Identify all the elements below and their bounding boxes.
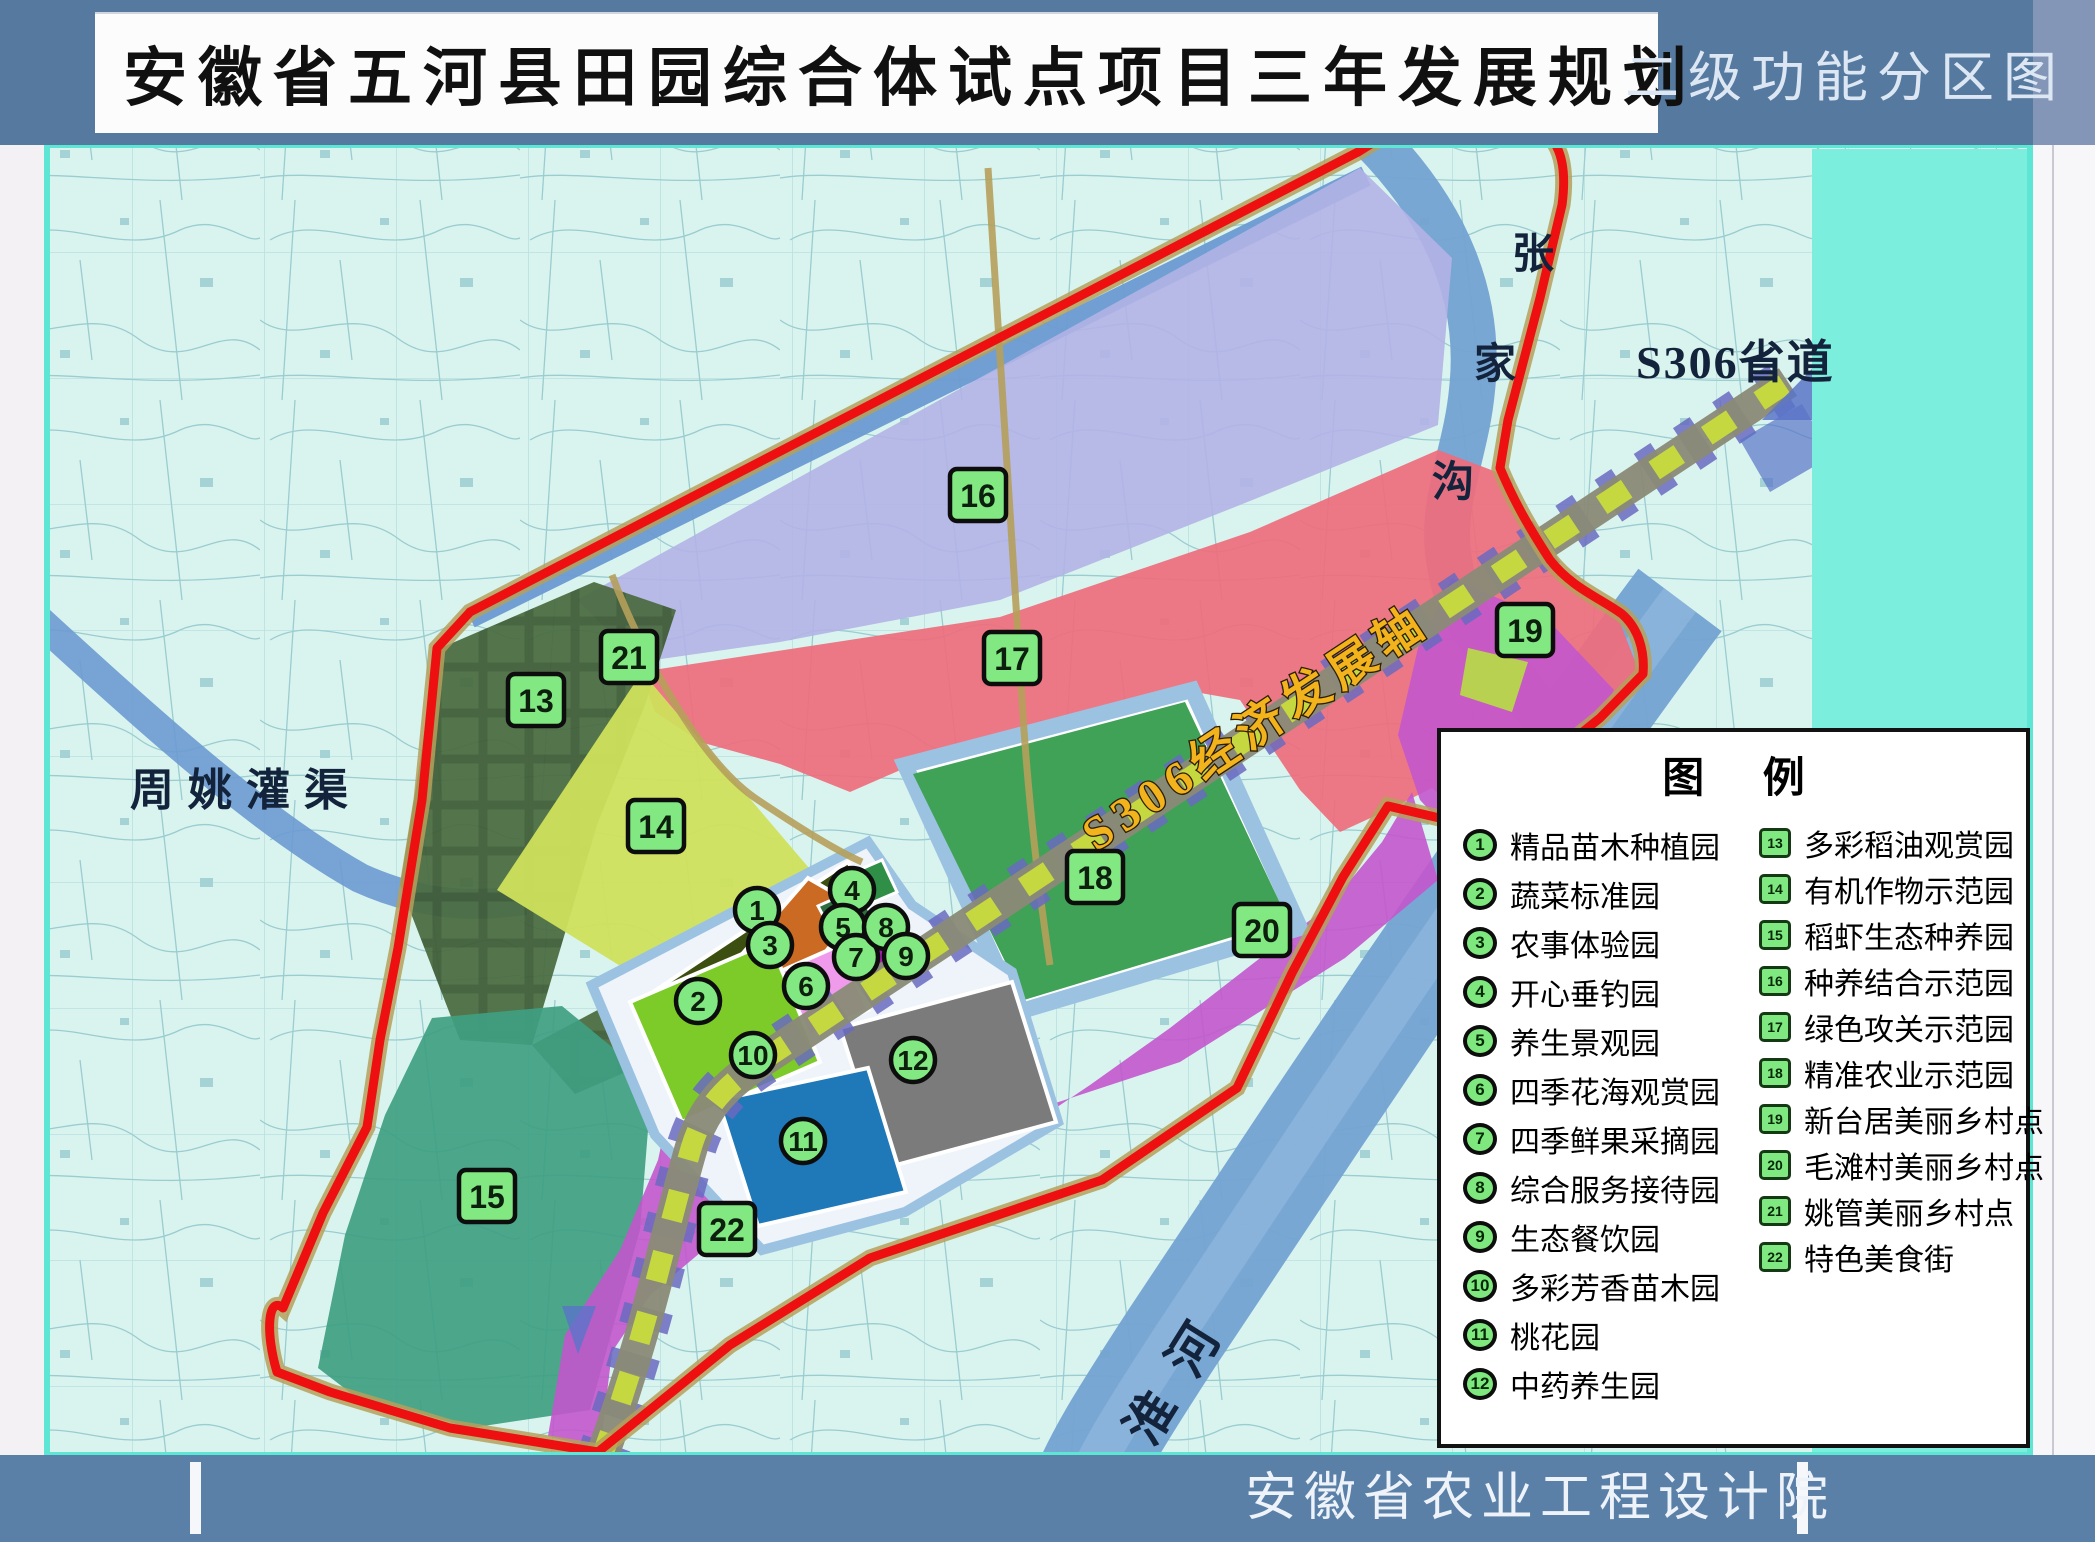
legend-item-10: 10多彩芳香苗木园 [1463, 1261, 1763, 1310]
badge-number: 17 [994, 641, 1030, 677]
badge-number: 20 [1244, 913, 1280, 949]
badge-number: 4 [844, 875, 860, 906]
legend-circle-badge: 7 [1463, 1123, 1497, 1155]
map-badge-11: 11 [781, 1119, 825, 1163]
map-type-title: 二级功能分区图 [1625, 33, 2066, 112]
legend-item-label: 农事体验园 [1510, 921, 1660, 965]
legend-item-1: 1精品苗木种植园 [1463, 820, 1763, 869]
legend-item-22: 22特色美食街 [1759, 1234, 2024, 1280]
label-zhouyao-canal: 周姚灌渠 [130, 766, 362, 815]
legend-item-label: 精准农业示范园 [1804, 1051, 2014, 1095]
legend-square-badge: 13 [1759, 828, 1791, 858]
legend-item-7: 7四季鲜果采摘园 [1463, 1114, 1763, 1163]
legend-square-badge: 20 [1759, 1150, 1791, 1180]
legend-item-18: 18精准农业示范园 [1759, 1050, 2024, 1096]
badge-number: 7 [848, 942, 864, 973]
map-badge-18: 18 [1067, 851, 1123, 903]
map-badge-20: 20 [1234, 904, 1290, 956]
map-badge-3: 3 [748, 923, 792, 967]
legend-item-17: 17绿色攻关示范园 [1759, 1004, 2024, 1050]
legend-circle-badge: 6 [1463, 1074, 1497, 1106]
left-margin [0, 145, 47, 1455]
legend-item-label: 桃花园 [1510, 1313, 1600, 1357]
legend-square-badge: 19 [1759, 1104, 1791, 1134]
badge-number: 1 [749, 895, 765, 926]
legend-circle-badge: 8 [1463, 1172, 1497, 1204]
map-badge-21: 21 [601, 631, 657, 683]
label-gou-char: 沟 [1432, 459, 1474, 506]
map-badge-13: 13 [508, 674, 564, 726]
badge-number: 16 [960, 478, 996, 514]
legend-circle-badge: 3 [1463, 927, 1497, 959]
legend-item-label: 毛滩村美丽乡村点 [1804, 1143, 2044, 1187]
legend-item-label: 稻虾生态种养园 [1804, 913, 2014, 957]
legend-column-1: 1精品苗木种植园2蔬菜标准园3农事体验园4开心垂钓园5养生景观园6四季花海观赏园… [1463, 820, 1763, 1408]
legend-item-label: 姚管美丽乡村点 [1804, 1189, 2014, 1233]
legend-item-5: 5养生景观园 [1463, 1016, 1763, 1065]
legend-circle-badge: 1 [1463, 829, 1497, 861]
zoning-map-poster: { "header": { "title": "安徽省五河县田园综合体试点项目三… [0, 0, 2095, 1542]
legend-item-19: 19新台居美丽乡村点 [1759, 1096, 2024, 1142]
legend-title: 图 例 [1441, 744, 2026, 805]
legend-square-badge: 16 [1759, 966, 1791, 996]
legend-item-label: 综合服务接待园 [1510, 1166, 1720, 1210]
badge-number: 11 [788, 1126, 818, 1157]
legend-item-label: 养生景观园 [1510, 1019, 1660, 1063]
legend-square-badge: 22 [1759, 1242, 1791, 1272]
footer-bar: 安徽省农业工程设计院 [0, 1455, 2095, 1542]
badge-number: 18 [1077, 860, 1113, 896]
legend-item-14: 14有机作物示范园 [1759, 866, 2024, 912]
corner-title-box: 二级功能分区图 [1658, 12, 2033, 133]
legend-circle-badge: 11 [1463, 1319, 1497, 1351]
badge-number: 13 [518, 683, 554, 719]
legend-item-label: 种养结合示范园 [1804, 959, 2014, 1003]
legend-circle-badge: 10 [1463, 1270, 1497, 1302]
badge-number: 9 [898, 941, 914, 972]
legend-circle-badge: 9 [1463, 1221, 1497, 1253]
map-badge-14: 14 [628, 800, 684, 852]
map-badge-17: 17 [984, 632, 1040, 684]
legend-item-4: 4开心垂钓园 [1463, 967, 1763, 1016]
map-badge-15: 15 [459, 1170, 515, 1222]
legend-square-badge: 14 [1759, 874, 1791, 904]
legend-item-2: 2蔬菜标准园 [1463, 869, 1763, 918]
map-badge-16: 16 [950, 469, 1006, 521]
legend-circle-badge: 12 [1463, 1368, 1497, 1400]
legend-item-label: 四季鲜果采摘园 [1510, 1117, 1720, 1161]
legend-circle-badge: 5 [1463, 1025, 1497, 1057]
legend-circle-badge: 2 [1463, 878, 1497, 910]
legend-item-15: 15稻虾生态种养园 [1759, 912, 2024, 958]
map-badge-12: 12 [891, 1038, 935, 1082]
legend-item-8: 8综合服务接待园 [1463, 1163, 1763, 1212]
map-badge-10: 10 [731, 1033, 775, 1077]
legend-item-9: 9生态餐饮园 [1463, 1212, 1763, 1261]
badge-number: 12 [897, 1045, 928, 1076]
legend-circle-badge: 4 [1463, 976, 1497, 1008]
label-s306-road: S306省道 [1636, 337, 1835, 388]
legend-square-badge: 17 [1759, 1012, 1791, 1042]
map-badge-6: 6 [784, 964, 828, 1008]
legend-item-label: 四季花海观赏园 [1510, 1068, 1720, 1112]
legend-square-badge: 18 [1759, 1058, 1791, 1088]
legend-item-label: 新台居美丽乡村点 [1804, 1097, 2044, 1141]
legend-item-12: 12中药养生园 [1463, 1359, 1763, 1408]
legend-item-3: 3农事体验园 [1463, 918, 1763, 967]
map-badge-2: 2 [676, 979, 720, 1023]
badge-number: 6 [798, 971, 814, 1002]
publisher-name: 安徽省农业工程设计院 [1245, 1455, 1835, 1542]
legend-item-11: 11桃花园 [1463, 1310, 1763, 1359]
legend-item-13: 13多彩稻油观赏园 [1759, 820, 2024, 866]
legend-item-16: 16种养结合示范园 [1759, 958, 2024, 1004]
legend-item-label: 多彩芳香苗木园 [1510, 1264, 1720, 1308]
map-badge-9: 9 [884, 934, 928, 978]
legend-item-label: 中药养生园 [1510, 1362, 1660, 1406]
header-bar: 安徽省五河县田园综合体试点项目三年发展规划 二级功能分区图 [0, 0, 2095, 145]
legend-square-badge: 21 [1759, 1196, 1791, 1226]
legend-item-6: 6四季花海观赏园 [1463, 1065, 1763, 1114]
right-margin [2030, 145, 2095, 1455]
page-title: 安徽省五河县田园综合体试点项目三年发展规划 [95, 27, 1698, 119]
map-badge-19: 19 [1497, 604, 1553, 656]
badge-number: 15 [469, 1179, 505, 1215]
footer-tick-left [190, 1462, 201, 1534]
legend-item-20: 20毛滩村美丽乡村点 [1759, 1142, 2024, 1188]
badge-number: 2 [690, 986, 706, 1017]
badge-number: 3 [762, 930, 778, 961]
legend-box: 图 例 1精品苗木种植园2蔬菜标准园3农事体验园4开心垂钓园5养生景观园6四季花… [1437, 728, 2030, 1448]
label-zhang-char: 张 [1512, 232, 1554, 278]
title-panel: 安徽省五河县田园综合体试点项目三年发展规划 [95, 12, 1658, 133]
badge-number: 22 [709, 1212, 745, 1248]
legend-square-badge: 15 [1759, 920, 1791, 950]
legend-item-label: 蔬菜标准园 [1510, 872, 1660, 916]
map-badge-22: 22 [699, 1203, 755, 1255]
badge-number: 19 [1507, 613, 1543, 649]
badge-number: 10 [737, 1040, 768, 1071]
legend-item-label: 精品苗木种植园 [1510, 823, 1720, 867]
legend-item-21: 21姚管美丽乡村点 [1759, 1188, 2024, 1234]
legend-column-2: 13多彩稻油观赏园14有机作物示范园15稻虾生态种养园16种养结合示范园17绿色… [1759, 820, 2024, 1280]
legend-item-label: 有机作物示范园 [1804, 867, 2014, 911]
legend-item-label: 多彩稻油观赏园 [1804, 821, 2014, 865]
legend-item-label: 特色美食街 [1804, 1235, 1954, 1279]
legend-item-label: 绿色攻关示范园 [1804, 1005, 2014, 1049]
label-jia-char: 家 [1474, 341, 1516, 388]
badge-number: 14 [638, 809, 674, 845]
legend-item-label: 生态餐饮园 [1510, 1215, 1660, 1259]
legend-item-label: 开心垂钓园 [1510, 970, 1660, 1014]
badge-number: 21 [611, 640, 647, 676]
